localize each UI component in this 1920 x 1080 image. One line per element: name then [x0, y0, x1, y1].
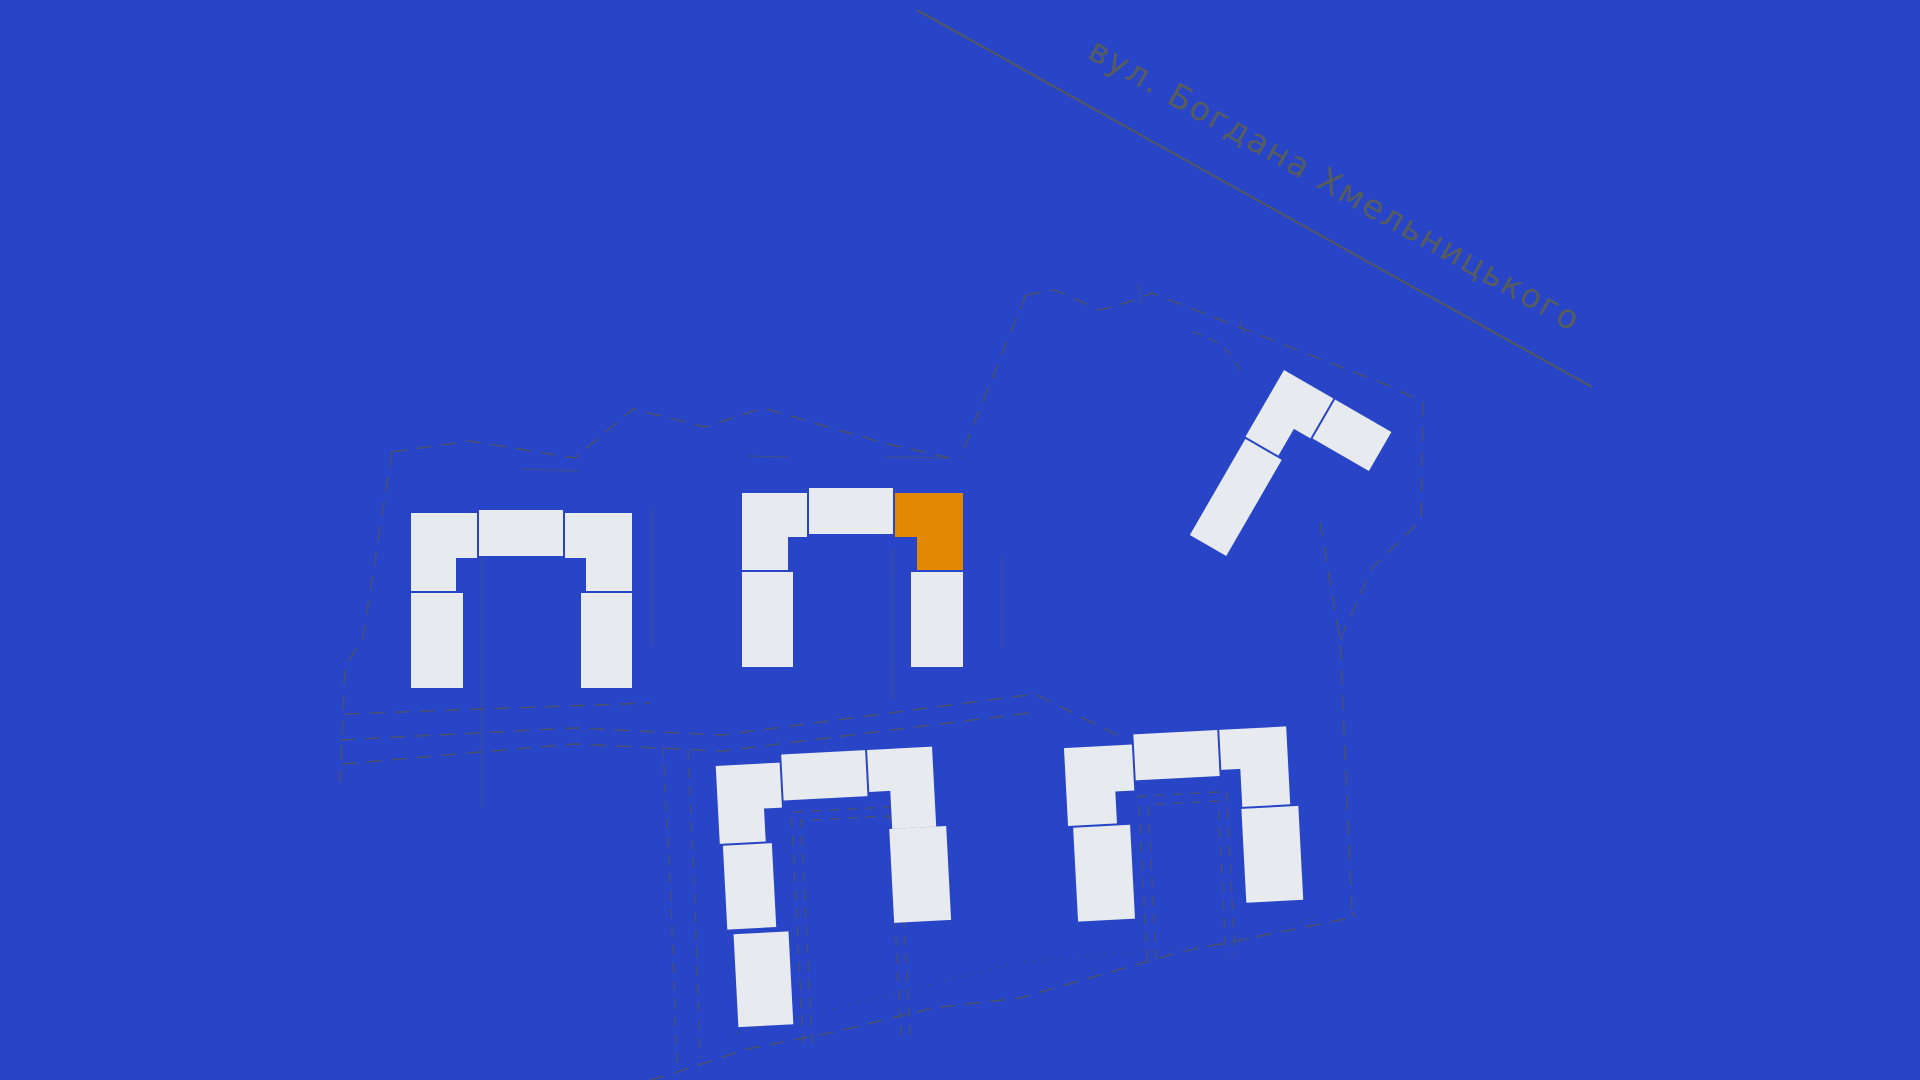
building-block[interactable] [479, 510, 563, 556]
site-plan-canvas: вул. Богдана Хмельницького [0, 0, 1920, 1080]
building-block[interactable] [411, 593, 463, 688]
building-block[interactable] [1133, 730, 1219, 780]
building-block[interactable] [809, 488, 893, 534]
building-block[interactable] [1241, 806, 1303, 903]
building-block[interactable] [581, 593, 632, 688]
building-block[interactable] [1073, 825, 1135, 922]
building-block[interactable] [911, 572, 963, 667]
building-block[interactable] [734, 931, 794, 1027]
building-block[interactable] [742, 572, 793, 667]
building-block[interactable] [723, 843, 776, 929]
site-plan-map: вул. Богдана Хмельницького [0, 0, 1920, 1080]
building-block[interactable] [781, 750, 867, 800]
building-block[interactable] [889, 826, 951, 923]
